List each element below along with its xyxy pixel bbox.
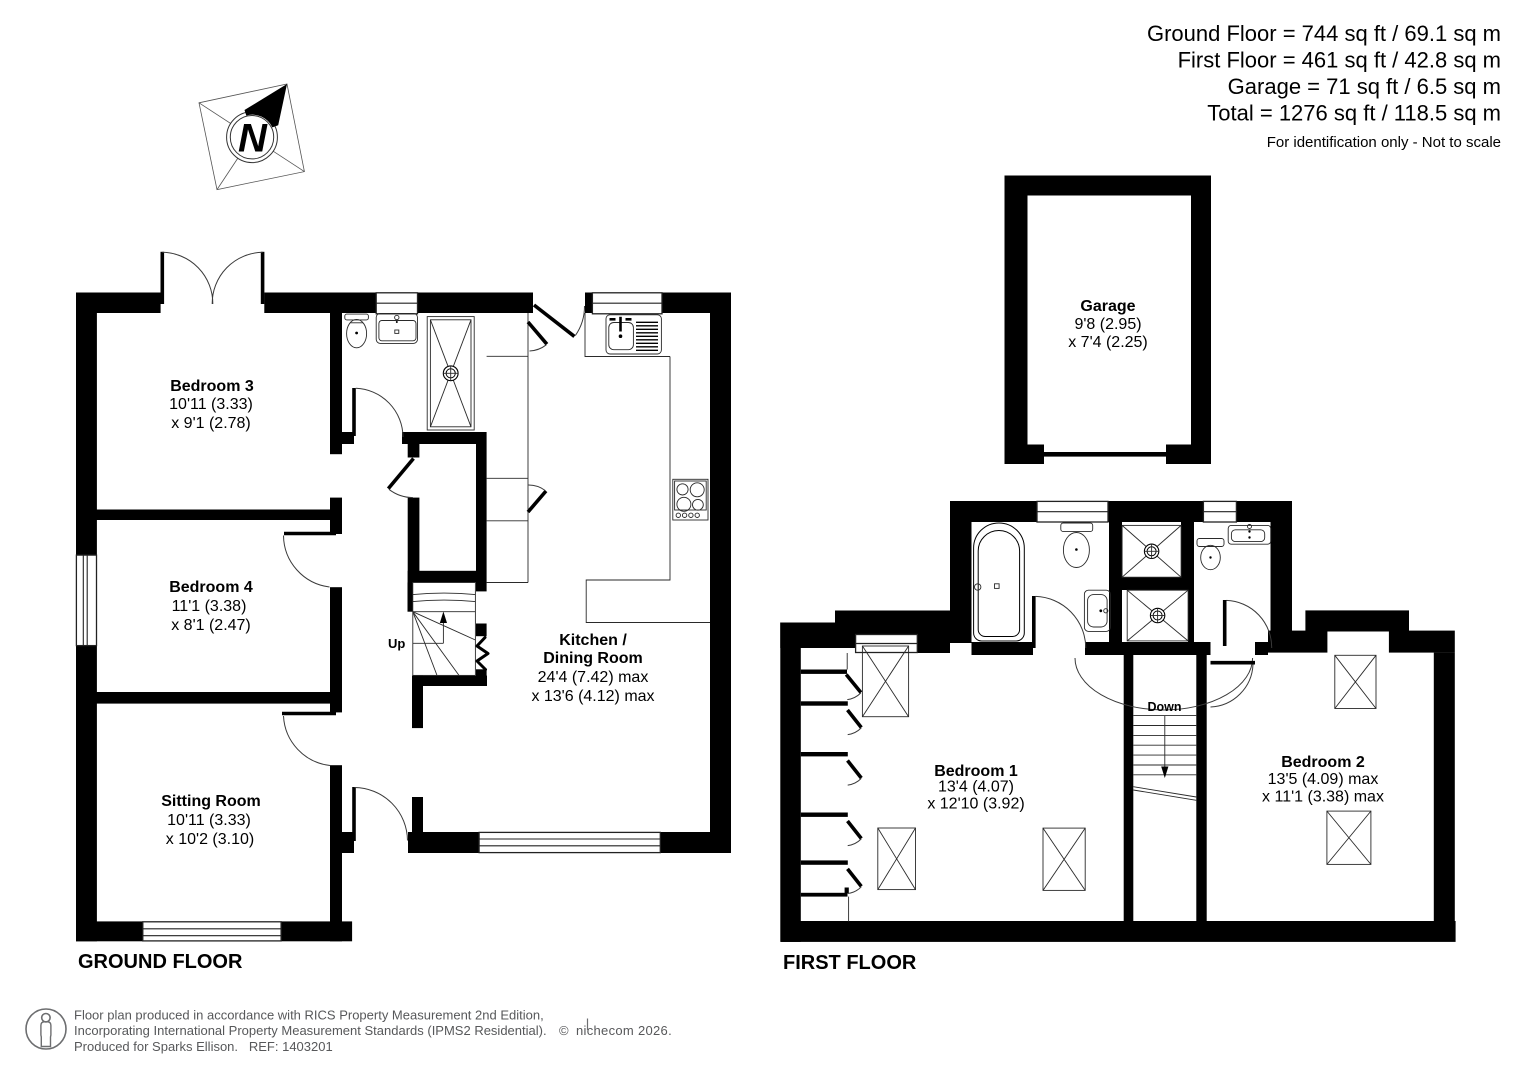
svg-text:x 7'4 (2.25): x 7'4 (2.25) <box>1068 334 1148 351</box>
svg-text:Bedroom 2: Bedroom 2 <box>1281 754 1365 771</box>
svg-text:©: © <box>559 1023 569 1038</box>
svg-text:13'4 (4.07): 13'4 (4.07) <box>938 779 1014 796</box>
svg-text:11'1 (3.38): 11'1 (3.38) <box>172 598 247 615</box>
svg-text:Bedroom 3: Bedroom 3 <box>170 378 254 395</box>
svg-text:Garage: Garage <box>1080 298 1135 315</box>
svg-text:Floor plan produced in accorda: Floor plan produced in accordance with R… <box>74 1008 544 1023</box>
svg-text:For identification only - Not: For identification only - Not to scale <box>1267 134 1501 151</box>
svg-text:10'11 (3.33): 10'11 (3.33) <box>169 396 253 413</box>
svg-text:10'11 (3.33): 10'11 (3.33) <box>167 812 251 829</box>
svg-text:Garage = 71 sq ft / 6.5 sq m: Garage = 71 sq ft / 6.5 sq m <box>1228 74 1501 99</box>
svg-text:Dining Room: Dining Room <box>543 650 643 667</box>
svg-text:Kitchen /: Kitchen / <box>559 632 627 649</box>
svg-text:N: N <box>238 117 268 161</box>
svg-text:Produced for Sparks Ellison.: Produced for Sparks Ellison. REF: 140320… <box>74 1039 333 1054</box>
svg-text:Down: Down <box>1147 700 1181 714</box>
svg-text:x 9'1 (2.78): x 9'1 (2.78) <box>171 415 251 432</box>
svg-text:x 8'1 (2.47): x 8'1 (2.47) <box>171 617 251 634</box>
svg-text:Bedroom 1: Bedroom 1 <box>934 763 1018 780</box>
svg-text:13'5 (4.09) max: 13'5 (4.09) max <box>1268 771 1379 788</box>
svg-text:24'4 (7.42) max: 24'4 (7.42) max <box>538 669 649 686</box>
svg-text:GROUND FLOOR: GROUND FLOOR <box>78 951 243 973</box>
svg-text:Total = 1276 sq ft / 118.5 sq: Total = 1276 sq ft / 118.5 sq m <box>1207 101 1501 126</box>
svg-text:FIRST FLOOR: FIRST FLOOR <box>783 952 917 974</box>
svg-text:Up: Up <box>388 636 405 651</box>
svg-text:9'8 (2.95): 9'8 (2.95) <box>1074 316 1141 333</box>
svg-text:nichecom 2026.: nichecom 2026. <box>576 1023 672 1038</box>
svg-text:x 11'1 (3.38) max: x 11'1 (3.38) max <box>1262 789 1384 806</box>
svg-text:x 13'6 (4.12) max: x 13'6 (4.12) max <box>531 688 654 705</box>
svg-text:Sitting Room: Sitting Room <box>161 793 261 810</box>
svg-text:Incorporating International Pr: Incorporating International Property Mea… <box>74 1023 547 1038</box>
svg-text:First Floor = 461 sq ft / 42.8: First Floor = 461 sq ft / 42.8 sq m <box>1178 48 1501 73</box>
svg-text:Bedroom 4: Bedroom 4 <box>169 579 253 596</box>
svg-text:Ground Floor = 744 sq ft / 69.: Ground Floor = 744 sq ft / 69.1 sq m <box>1147 21 1501 46</box>
svg-text:x 12'10 (3.92): x 12'10 (3.92) <box>927 796 1024 813</box>
svg-text:x 10'2 (3.10): x 10'2 (3.10) <box>166 831 254 848</box>
